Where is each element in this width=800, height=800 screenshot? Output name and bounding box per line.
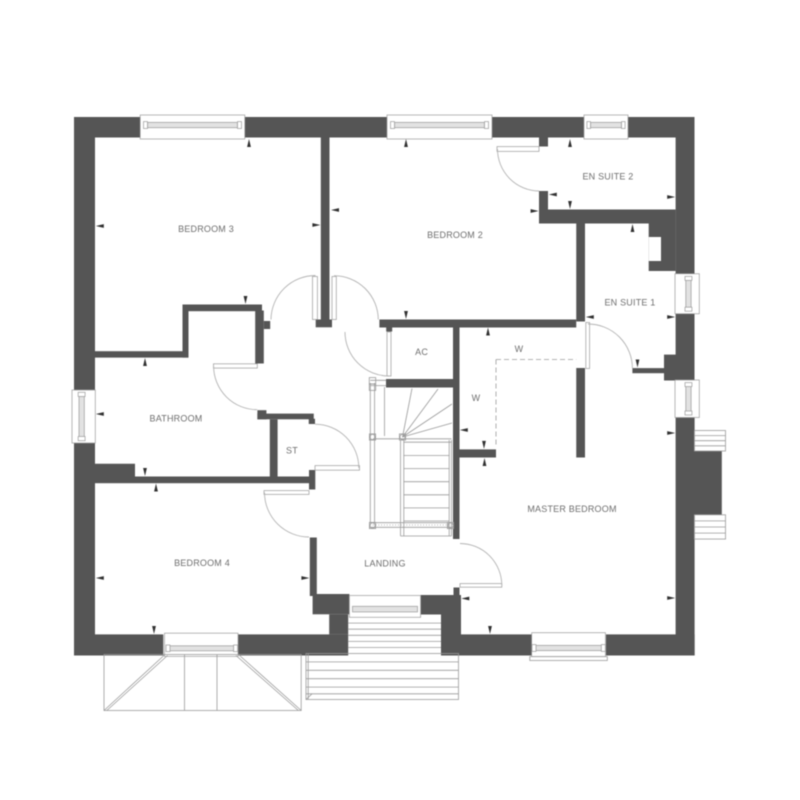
svg-text:W: W [515,344,524,354]
svg-text:BEDROOM 4: BEDROOM 4 [174,558,230,568]
svg-text:LANDING: LANDING [364,559,405,569]
svg-text:W: W [472,393,481,403]
svg-text:MASTER BEDROOM: MASTER BEDROOM [527,504,616,514]
svg-text:BATHROOM: BATHROOM [150,414,203,424]
svg-text:ST: ST [286,446,298,456]
svg-text:BEDROOM 3: BEDROOM 3 [178,224,234,234]
svg-text:AC: AC [415,347,428,357]
svg-text:BEDROOM 2: BEDROOM 2 [427,230,483,240]
svg-text:EN SUITE 2: EN SUITE 2 [582,172,633,182]
svg-text:EN SUITE 1: EN SUITE 1 [604,298,655,308]
